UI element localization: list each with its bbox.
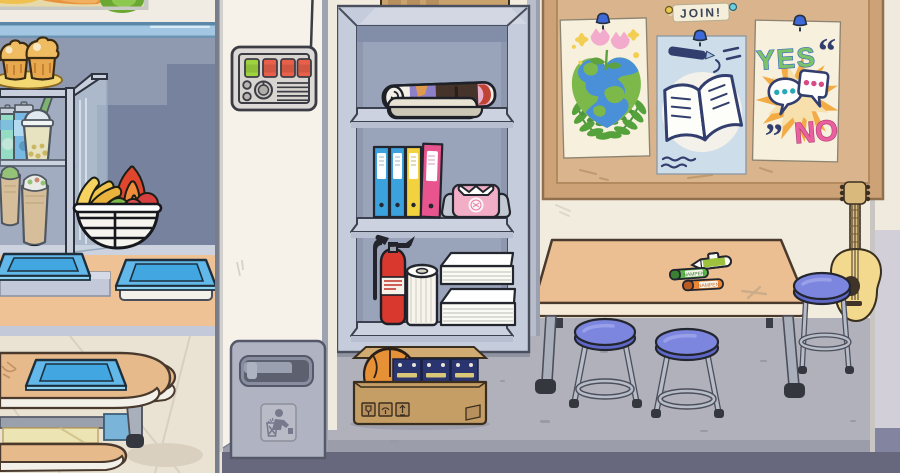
svg-text:“: “ bbox=[817, 30, 836, 70]
svg-text:NO: NO bbox=[793, 115, 839, 151]
svg-text:NAMPEN: NAMPEN bbox=[698, 282, 720, 289]
svg-text:JOIN!: JOIN! bbox=[680, 5, 722, 20]
